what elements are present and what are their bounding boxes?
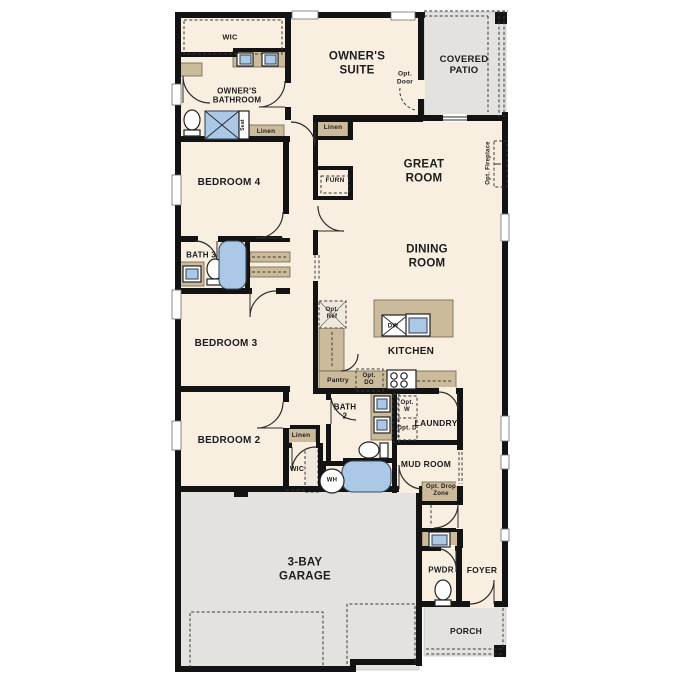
room-label-bath2: BATH 2 [332, 403, 358, 422]
room-label-wic2: WIC [290, 466, 304, 474]
window [172, 290, 181, 319]
floor-plan: WIC OWNER'S BATHROOM Seat Linen OWNER'S … [0, 0, 687, 687]
bath3-tub [219, 241, 246, 289]
bath2-toilet [359, 442, 379, 458]
bath2-sink-2 [377, 420, 387, 430]
label-opt-door: Opt. Door [391, 70, 419, 85]
label-furnace: FURN [325, 177, 344, 185]
window [172, 421, 181, 450]
bath2-sink-1 [377, 399, 387, 409]
window [172, 175, 181, 205]
wic2-shelf [305, 447, 318, 492]
room-label-owners-suite: OWNER'S SUITE [317, 50, 397, 77]
room-label-bedroom4: BEDROOM 4 [198, 177, 261, 189]
label-linen-hall: Linen [292, 432, 311, 440]
label-opt-ref: Opt. Ref [321, 307, 343, 321]
label-dishwasher: DW [388, 323, 399, 330]
window [501, 416, 509, 441]
label-pantry: Pantry [327, 377, 349, 385]
room-label-bedroom2: BEDROOM 2 [198, 435, 261, 447]
label-seat: Seat [241, 119, 247, 131]
hall-sink [432, 535, 447, 545]
window [292, 11, 318, 19]
label-linen-bath: Linen [257, 128, 276, 136]
label-opt-drop-zone: Opt. Drop Zone [421, 484, 461, 498]
label-opt-w: Opt. W [397, 400, 417, 414]
room-label-great-room: GREAT ROOM [389, 158, 459, 185]
window [391, 12, 415, 20]
room-label-laundry: LAUNDRY [415, 418, 458, 428]
room-label-owners-bathroom: OWNER'S BATHROOM [202, 87, 272, 106]
label-linen-suite: Linen [324, 124, 343, 132]
room-label-mud-room: MUD ROOM [401, 459, 451, 469]
pwdr-toilet [435, 580, 451, 600]
plan-drawing [0, 0, 687, 687]
room-label-dining-room: DINING ROOM [392, 243, 462, 270]
window [501, 529, 509, 541]
room-label-covered-patio: COVERED PATIO [434, 54, 494, 76]
room-label-wic: WIC [222, 34, 237, 43]
room-label-kitchen: KITCHEN [388, 346, 434, 358]
owners-bath-sink-1 [240, 55, 251, 64]
owners-bath-sink-2 [265, 55, 276, 64]
label-opt-do: Opt. DO [358, 373, 380, 387]
owners-bath-toilet [184, 110, 200, 130]
kitchen-sink [409, 318, 427, 333]
room-label-pwdr: PWDR [428, 565, 453, 574]
room-label-bedroom3: BEDROOM 3 [195, 338, 258, 350]
window [501, 214, 509, 241]
window [172, 84, 181, 105]
label-water-heater: WH [327, 477, 338, 484]
room-label-foyer: FOYER [467, 565, 498, 575]
label-opt-fireplace: Opt. Fireplace [485, 141, 492, 185]
window [501, 455, 509, 469]
room-label-bath3: BATH 3 [186, 250, 216, 259]
bath3-sink [186, 269, 198, 279]
room-label-garage: 3-BAY GARAGE [265, 556, 345, 583]
bath2-tub [342, 461, 391, 492]
room-label-porch: PORCH [450, 626, 482, 636]
